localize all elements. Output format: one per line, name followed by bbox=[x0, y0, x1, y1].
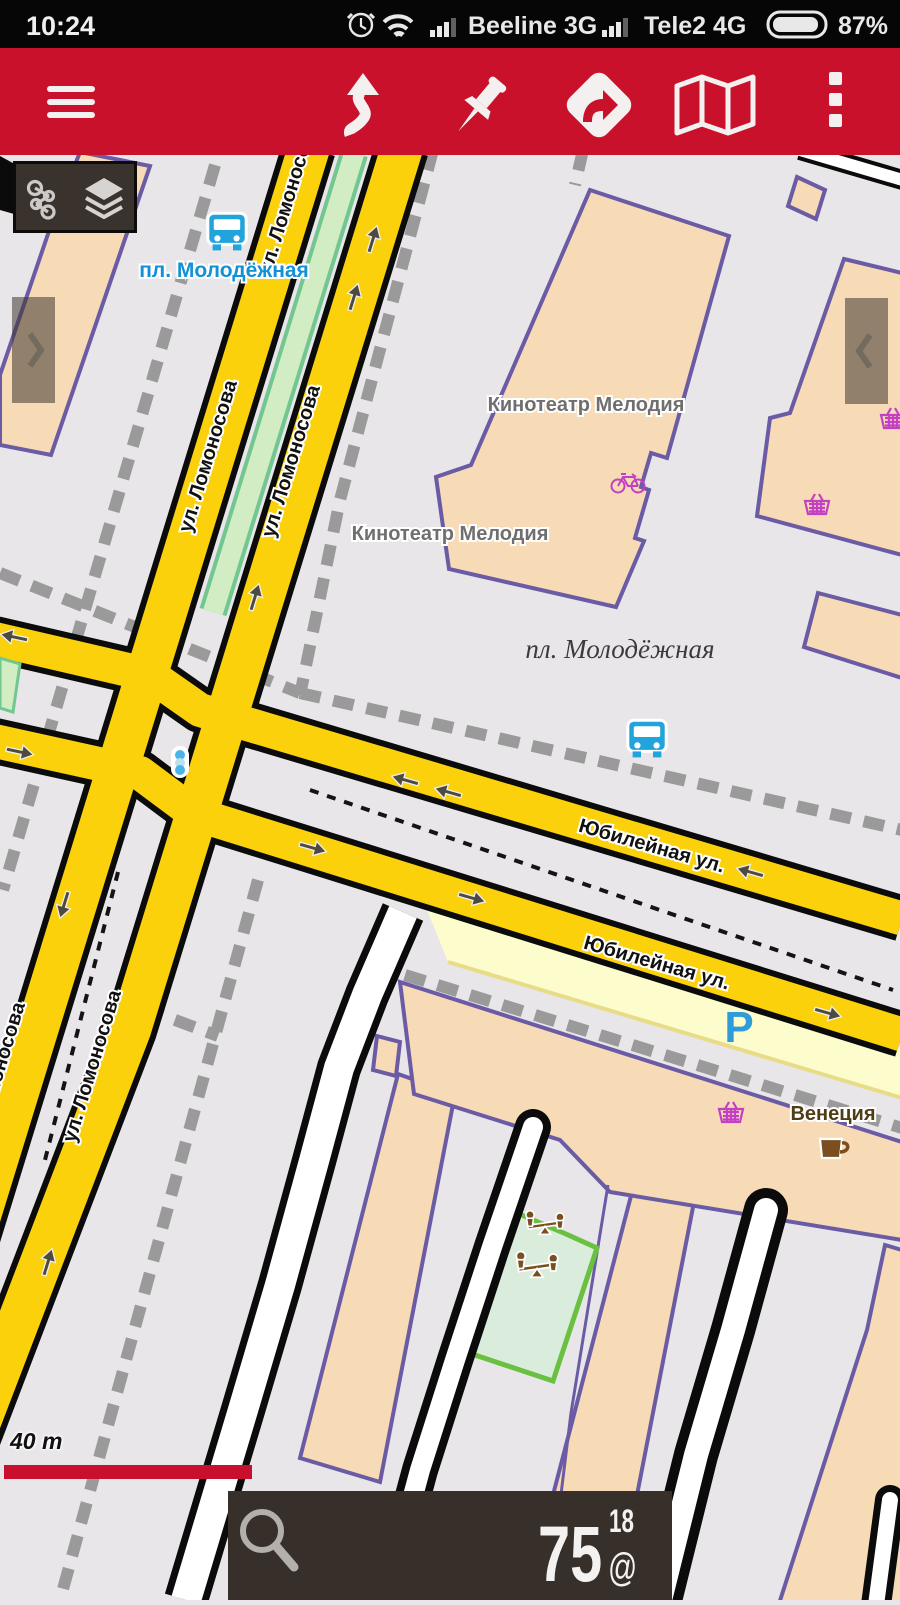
svg-text:P: P bbox=[724, 1003, 753, 1052]
svg-text:Кинотеатр Мелодия: Кинотеатр Мелодия bbox=[488, 394, 685, 416]
svg-text:Венеция: Венеция bbox=[790, 1103, 875, 1125]
svg-text:87%: 87% bbox=[838, 12, 888, 40]
svg-text:Кинотеатр Мелодия: Кинотеатр Мелодия bbox=[352, 523, 549, 545]
svg-text:Beeline 3G: Beeline 3G bbox=[468, 12, 597, 40]
svg-text:пл. Молодёжная: пл. Молодёжная bbox=[525, 634, 714, 664]
svg-text:пл. Молодёжная: пл. Молодёжная bbox=[139, 259, 309, 282]
svg-text:10:24: 10:24 bbox=[26, 11, 95, 41]
svg-text:Tele2 4G: Tele2 4G bbox=[644, 12, 746, 40]
